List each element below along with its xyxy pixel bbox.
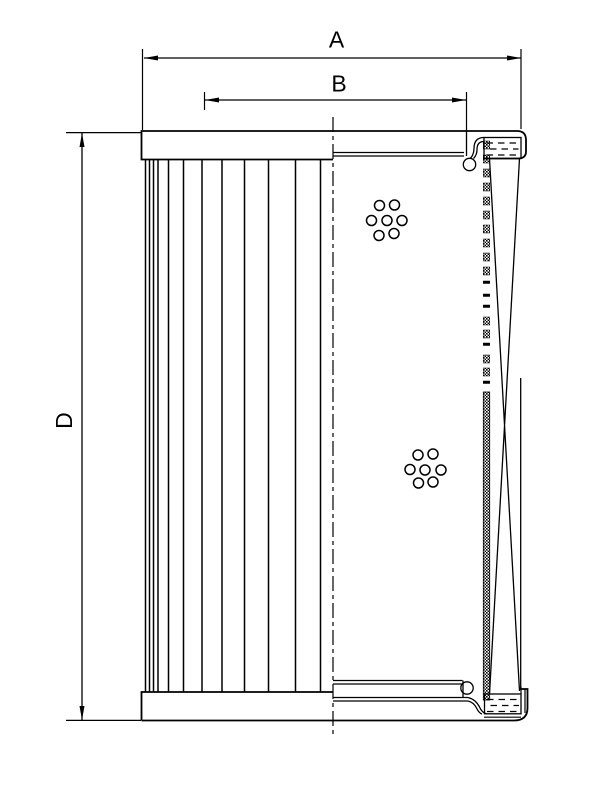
arrowhead-bottom	[80, 706, 85, 720]
top-flange-hook	[470, 138, 484, 159]
seal-dashes	[487, 143, 519, 155]
top-end-cap-outline	[142, 131, 527, 160]
filter-section-internal	[333, 131, 525, 717]
arrowhead-left	[205, 98, 219, 103]
bottom-media-support-lines	[333, 681, 463, 685]
dimension-label-d: D	[51, 412, 77, 429]
top-cap-inner-surface-lines	[333, 153, 464, 157]
hole	[374, 231, 384, 241]
dimension-label-a: A	[329, 27, 345, 53]
arrowhead-left	[144, 56, 158, 61]
hole	[390, 200, 400, 210]
hole	[397, 216, 407, 226]
hole	[428, 477, 438, 487]
hole	[420, 465, 430, 475]
dimension-b: B	[205, 71, 467, 132]
arrowhead-right	[452, 98, 466, 103]
dimension-d: D	[51, 133, 141, 721]
core-tube-hatch-strip	[483, 141, 489, 700]
hole	[367, 216, 377, 226]
perforation-holes-upper	[367, 200, 408, 241]
filter-body-external	[142, 131, 528, 721]
hole	[436, 465, 446, 475]
hole	[428, 449, 438, 459]
perforation-holes-lower	[405, 449, 446, 488]
hatch-strip-lower	[483, 392, 489, 700]
arrowhead-top	[80, 133, 85, 147]
hole	[405, 465, 415, 475]
arrowhead-right	[507, 56, 521, 61]
seal-dashes	[487, 700, 519, 712]
drawing-canvas: A B D	[0, 0, 612, 792]
hole	[413, 450, 423, 460]
o-ring-top	[463, 158, 475, 170]
dimension-label-b: B	[331, 71, 346, 97]
hole	[382, 216, 392, 226]
filter-element-drawing: A B D	[0, 0, 612, 792]
hole	[375, 201, 385, 211]
bottom-cap-inner-surface-lines	[333, 698, 468, 702]
pleat-lines	[146, 160, 321, 693]
hole	[414, 478, 424, 488]
support-mesh-diagonals	[490, 159, 520, 695]
hatch-blocks-upper	[483, 141, 489, 384]
hole	[389, 229, 399, 239]
pleat-line-set	[146, 160, 321, 693]
